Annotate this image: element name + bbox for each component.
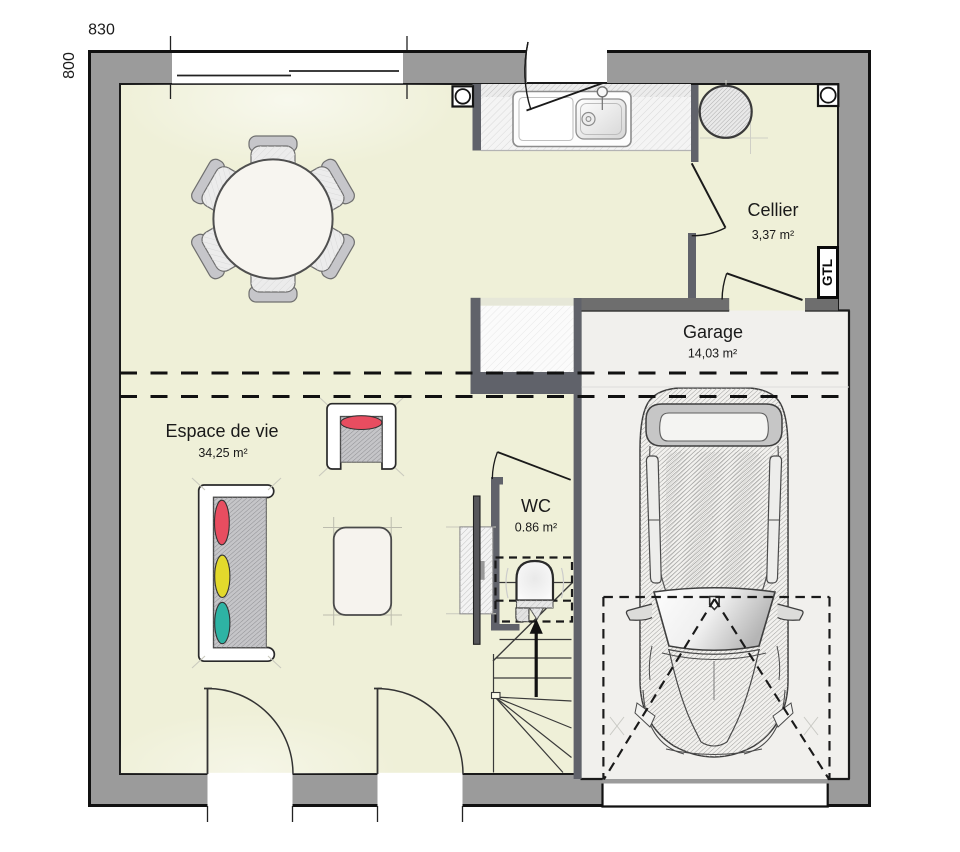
svg-text:14,03 m²: 14,03 m²: [688, 347, 737, 361]
svg-text:34,25 m²: 34,25 m²: [198, 446, 247, 460]
svg-text:Cellier: Cellier: [747, 200, 798, 220]
svg-text:3,37 m²: 3,37 m²: [752, 228, 794, 242]
svg-text:GTL: GTL: [820, 259, 835, 286]
svg-text:0.86 m²: 0.86 m²: [515, 521, 557, 535]
svg-text:WC: WC: [521, 496, 551, 516]
svg-text:830: 830: [88, 22, 115, 39]
svg-text:Espace de vie: Espace de vie: [165, 421, 278, 441]
svg-text:Garage: Garage: [683, 322, 743, 342]
svg-text:800: 800: [61, 52, 78, 79]
